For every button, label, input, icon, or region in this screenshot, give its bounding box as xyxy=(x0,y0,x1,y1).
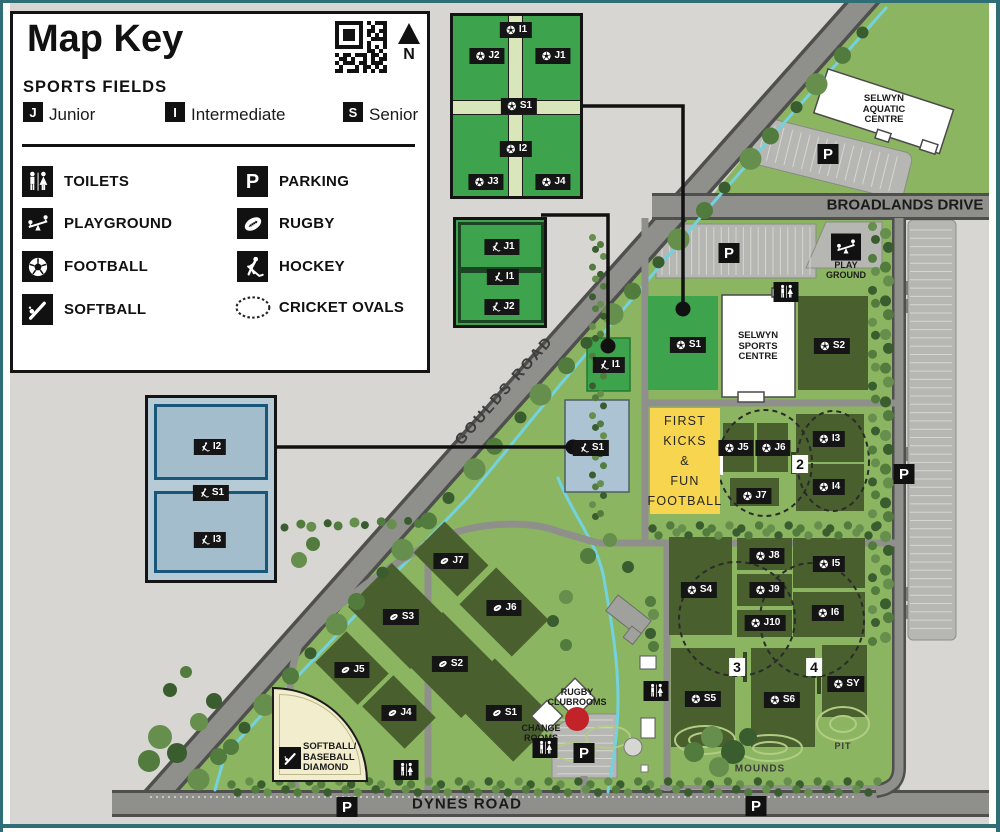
field-label-rugby-j7: J7 xyxy=(433,553,468,569)
field-code: I3 xyxy=(213,535,221,545)
rugby-icon xyxy=(237,208,268,239)
softball-diamond-label: SOFTBALL/ BASEBALL DIAMOND xyxy=(303,742,356,774)
tree xyxy=(871,586,880,595)
tree xyxy=(672,528,680,536)
tree xyxy=(281,785,289,793)
legend-label: HOCKEY xyxy=(279,258,345,275)
field-label-football-i4: I4 xyxy=(813,479,845,495)
tree xyxy=(774,531,782,539)
field-code: J9 xyxy=(768,585,779,595)
field-code: I2 xyxy=(519,144,527,154)
tree xyxy=(296,520,305,529)
football-icon xyxy=(818,481,830,493)
first-kicks-area: FIRST KICKS & FUN FOOTBALL xyxy=(650,408,720,514)
field-label-football-s4: S4 xyxy=(681,582,717,598)
sports-centre-label: SELWYNSPORTSCENTRE xyxy=(738,331,778,363)
rugby-icon xyxy=(386,707,398,719)
tree xyxy=(880,295,891,306)
tree xyxy=(883,343,894,354)
tree xyxy=(581,337,593,349)
legend-label: CRICKET OVALS xyxy=(279,299,404,316)
hockey-icon xyxy=(492,271,504,283)
tree xyxy=(871,331,880,340)
field-code: I6 xyxy=(831,608,839,618)
field-code: J6 xyxy=(505,603,516,613)
tree xyxy=(597,390,604,397)
tree xyxy=(864,531,872,539)
cricket-ovals-icon xyxy=(232,294,274,321)
tree xyxy=(822,528,830,536)
softball-icon xyxy=(22,294,53,325)
dynes-road-label: DYNES ROAD xyxy=(412,797,522,814)
tree xyxy=(883,478,894,489)
tree xyxy=(589,323,596,330)
tree xyxy=(755,521,763,529)
rugby-icon xyxy=(438,555,450,567)
field-label-hockey-j2: J2 xyxy=(484,299,519,315)
tree xyxy=(514,777,522,785)
field-code: I1 xyxy=(519,25,527,35)
oval-number-2: 2 xyxy=(792,455,808,473)
tree xyxy=(559,590,573,604)
field-label-football-sy: SY xyxy=(827,676,864,692)
tree xyxy=(880,262,891,273)
tree xyxy=(251,785,259,793)
legend-label: SOFTBALL xyxy=(64,301,146,318)
tree xyxy=(696,521,704,529)
hockey-icon xyxy=(240,254,266,280)
field-label-football-s5: S5 xyxy=(685,691,721,707)
tree xyxy=(834,47,851,64)
parking-marker: P xyxy=(818,144,839,164)
tree xyxy=(648,641,659,652)
tree xyxy=(762,785,770,793)
field-label-football-j1: J1 xyxy=(535,48,570,64)
tree xyxy=(574,777,582,785)
page-margin-right xyxy=(989,3,996,824)
frame-right xyxy=(996,0,1000,832)
field-label-rugby-j5: J5 xyxy=(334,662,369,678)
key-divider xyxy=(22,144,415,147)
field-code: S4 xyxy=(700,585,712,595)
rugby-icon xyxy=(491,602,503,614)
football-icon xyxy=(690,693,702,705)
tree xyxy=(880,598,891,609)
tree xyxy=(377,517,386,526)
mounds-label: MOUNDS xyxy=(735,763,785,774)
tree xyxy=(864,788,872,796)
tree xyxy=(868,222,877,231)
tree xyxy=(740,148,762,170)
tree xyxy=(392,539,414,561)
tree xyxy=(223,739,239,755)
football-icon xyxy=(818,558,830,570)
frame-bottom xyxy=(0,824,1000,828)
tree xyxy=(227,780,235,788)
tree xyxy=(654,531,662,539)
field-code: I4 xyxy=(832,482,840,492)
tree xyxy=(600,283,607,290)
tree xyxy=(167,743,187,763)
tree xyxy=(701,726,723,748)
field-code: S2 xyxy=(451,659,463,669)
toilets-icon xyxy=(777,283,795,301)
softball-marker xyxy=(279,747,301,769)
football-icon xyxy=(819,340,831,352)
field-code: J1 xyxy=(554,51,565,61)
tree xyxy=(883,377,894,388)
tree xyxy=(868,382,877,391)
field-code: J6 xyxy=(774,443,785,453)
parking-icon: P xyxy=(237,166,268,197)
frame-top xyxy=(0,0,1000,3)
field-code: S3 xyxy=(402,612,414,622)
hockey-icon xyxy=(198,487,210,499)
football-icon xyxy=(760,442,772,454)
page-margin-bottom xyxy=(0,828,1000,832)
tree xyxy=(694,777,702,785)
football-icon xyxy=(818,433,830,445)
qr-code xyxy=(335,21,387,73)
tree xyxy=(871,235,880,244)
tree xyxy=(868,318,877,327)
toilets-icon xyxy=(397,761,415,779)
tree xyxy=(857,27,869,39)
tree xyxy=(600,373,607,380)
junior-label: Junior xyxy=(49,105,95,125)
tree xyxy=(600,462,607,469)
tree xyxy=(719,182,731,194)
tree xyxy=(432,785,440,793)
hockey-icon xyxy=(489,301,501,313)
tree xyxy=(834,788,842,796)
legend-label: PARKING xyxy=(279,173,349,190)
parking-icon: P xyxy=(246,172,259,192)
tree xyxy=(873,777,881,785)
tree xyxy=(702,785,710,793)
tree xyxy=(880,632,891,643)
field-label-football-j7: J7 xyxy=(736,488,771,504)
field-label-rugby-s2: S2 xyxy=(432,656,468,672)
tree xyxy=(492,785,500,793)
tree xyxy=(784,777,792,785)
field-code: J2 xyxy=(503,302,514,312)
tree xyxy=(880,228,891,239)
field-label-hockey-s1: S1 xyxy=(193,485,229,501)
tree xyxy=(804,531,812,539)
tree xyxy=(883,511,894,522)
page-margin-left xyxy=(3,3,10,824)
tree xyxy=(188,769,210,791)
hockey-icon xyxy=(199,534,211,546)
tree xyxy=(880,565,891,576)
tree xyxy=(404,517,412,525)
field-label-football-i2: I2 xyxy=(500,141,532,157)
field-code: S1 xyxy=(505,708,517,718)
field-label-football-s6: S6 xyxy=(764,692,800,708)
tree xyxy=(334,521,343,530)
tree xyxy=(462,785,470,793)
tree xyxy=(455,777,463,785)
field-label-football-j6: J6 xyxy=(755,440,790,456)
tree xyxy=(642,785,650,793)
tree xyxy=(883,444,894,455)
field-label-football-j3: J3 xyxy=(468,174,503,190)
tree xyxy=(597,480,604,487)
tree xyxy=(372,785,380,793)
tree xyxy=(732,528,740,536)
legend-item-rugby: RUGBY xyxy=(237,208,335,239)
tree xyxy=(597,331,604,338)
tree xyxy=(684,531,692,539)
tree xyxy=(714,531,722,539)
tree xyxy=(774,788,782,796)
tree xyxy=(785,521,793,529)
tree xyxy=(883,579,894,590)
hockey-icon xyxy=(199,441,211,453)
field-label-hockey-s1: S1 xyxy=(573,440,609,456)
tree xyxy=(305,647,317,659)
tree xyxy=(464,458,486,480)
tree xyxy=(589,234,596,241)
tree xyxy=(384,788,392,796)
field-code: S1 xyxy=(689,340,701,350)
tree xyxy=(600,253,607,260)
tree xyxy=(281,524,289,532)
rugby-icon xyxy=(388,611,400,623)
parking-marker: P xyxy=(574,743,595,763)
tree xyxy=(880,329,891,340)
aquatic-centre-label: SELWYNAQUATICCENTRE xyxy=(863,94,906,126)
tree xyxy=(600,313,607,320)
football-icon xyxy=(505,24,517,36)
tree xyxy=(589,264,596,271)
tree xyxy=(868,605,877,614)
field-label-hockey-j1: J1 xyxy=(484,239,519,255)
softball-icon xyxy=(25,297,51,323)
tree xyxy=(206,693,222,709)
field-label-football-j10: J10 xyxy=(745,615,786,631)
tree xyxy=(326,613,348,635)
softball-icon xyxy=(282,750,299,767)
tree xyxy=(282,668,299,685)
map-key-title: Map Key xyxy=(27,18,183,61)
tree xyxy=(804,788,812,796)
toilets-marker xyxy=(644,681,669,701)
tree xyxy=(560,639,572,651)
field-code: I1 xyxy=(506,272,514,282)
tree xyxy=(485,777,493,785)
field-label-hockey-i3: I3 xyxy=(194,532,226,548)
tree xyxy=(868,286,877,295)
field-code: J8 xyxy=(768,551,779,561)
tree xyxy=(668,228,690,250)
playground-icon xyxy=(25,211,51,237)
field-label-football-i6: I6 xyxy=(812,605,844,621)
tree xyxy=(880,531,891,542)
sports-fields-heading: SPORTS FIELDS xyxy=(23,78,167,97)
legend-item-hockey: HOCKEY xyxy=(237,251,345,282)
field-label-football-s1: S1 xyxy=(501,98,537,114)
tree xyxy=(597,271,604,278)
connector-dot xyxy=(676,302,691,317)
football-icon xyxy=(723,442,735,454)
tree xyxy=(239,722,251,734)
tree xyxy=(871,267,880,276)
rugby-icon xyxy=(339,664,351,676)
tree xyxy=(564,788,572,796)
tree xyxy=(245,777,253,785)
tree xyxy=(702,528,710,536)
tree xyxy=(350,518,360,528)
field-code: S1 xyxy=(212,488,224,498)
field-label-football-i5: I5 xyxy=(813,556,845,572)
senior-label: Senior xyxy=(369,105,418,125)
rugby-clubrooms-label: RUGBYCLUBROOMS xyxy=(548,687,607,707)
parking-marker: P xyxy=(337,797,358,817)
tree xyxy=(311,785,319,793)
tree xyxy=(648,524,656,532)
field-label-football-j4: J4 xyxy=(535,174,570,190)
tree xyxy=(871,299,880,308)
tree xyxy=(868,573,877,582)
tree xyxy=(871,554,880,563)
tree xyxy=(873,521,881,529)
football-icon xyxy=(741,490,753,502)
tree xyxy=(414,519,423,528)
tree xyxy=(814,521,822,529)
football-icon xyxy=(473,176,485,188)
hockey-icon xyxy=(237,251,268,282)
tree xyxy=(600,492,607,499)
toilets-icon xyxy=(647,682,665,700)
tree xyxy=(341,785,349,793)
tree xyxy=(883,612,894,623)
tree xyxy=(880,363,891,374)
tree xyxy=(293,788,301,796)
tree xyxy=(600,402,607,409)
tree xyxy=(604,777,612,785)
intermediate-label: Intermediate xyxy=(191,105,286,125)
field-label-football-s1: S1 xyxy=(670,337,706,353)
tree xyxy=(534,788,542,796)
tree xyxy=(684,788,692,796)
field-code: S5 xyxy=(704,694,716,704)
tree xyxy=(868,477,877,486)
football-icon xyxy=(506,100,518,112)
tree xyxy=(666,521,674,529)
tree xyxy=(597,301,604,308)
tree xyxy=(664,777,672,785)
legend-label: RUGBY xyxy=(279,215,335,232)
connector-dot xyxy=(601,339,616,354)
parking-marker: P xyxy=(746,796,767,816)
field-code: S1 xyxy=(520,101,532,111)
tree xyxy=(648,609,659,620)
tree xyxy=(603,533,617,547)
hockey-icon xyxy=(578,442,590,454)
toilets-marker xyxy=(774,282,799,302)
tree xyxy=(589,293,596,300)
field-label-rugby-s3: S3 xyxy=(383,609,419,625)
tree xyxy=(233,788,241,796)
tree xyxy=(724,777,732,785)
rugby-icon xyxy=(437,658,449,670)
field-label-football-i3: I3 xyxy=(813,431,845,447)
football-icon xyxy=(540,176,552,188)
intermediate-code-badge: I xyxy=(165,102,185,122)
field-code: J3 xyxy=(487,177,498,187)
tree xyxy=(880,497,891,508)
field-code: J5 xyxy=(737,443,748,453)
tree xyxy=(420,512,437,529)
toilets-icon xyxy=(25,169,51,195)
tree xyxy=(306,522,316,532)
field-code: J7 xyxy=(755,491,766,501)
football-icon xyxy=(474,50,486,62)
tree xyxy=(291,552,307,568)
map-key-panel: Map Key N SPORTS FIELDS J Junior I Inter… xyxy=(10,11,430,373)
tree xyxy=(377,567,389,579)
selwyn-sports-park-map: Map Key N SPORTS FIELDS J Junior I Inter… xyxy=(0,0,1000,832)
tree xyxy=(792,785,800,793)
field-label-football-j5: J5 xyxy=(718,440,753,456)
tree xyxy=(762,528,770,536)
legend-label: PLAYGROUND xyxy=(64,215,172,232)
tree xyxy=(138,750,160,772)
field-code: S1 xyxy=(592,443,604,453)
tree xyxy=(852,528,860,536)
field-code: J7 xyxy=(452,556,463,566)
legend-item-softball: SOFTBALL xyxy=(22,294,146,325)
tree xyxy=(883,309,894,320)
tree xyxy=(624,788,632,796)
football-icon xyxy=(22,251,53,282)
field-code: I1 xyxy=(612,360,620,370)
legend-label: TOILETS xyxy=(64,173,129,190)
field-label-rugby-s1: S1 xyxy=(486,705,522,721)
football-icon xyxy=(754,550,766,562)
field-label-football-i1: I1 xyxy=(500,22,532,38)
tree xyxy=(883,410,894,421)
tree xyxy=(544,777,552,785)
tree xyxy=(425,777,433,785)
tree xyxy=(868,414,877,423)
playground-icon xyxy=(834,235,858,259)
tree xyxy=(714,788,722,796)
tree xyxy=(744,531,752,539)
football-icon xyxy=(817,607,829,619)
tree xyxy=(547,615,559,627)
field-code: S6 xyxy=(783,695,795,705)
tree xyxy=(792,528,800,536)
field-label-rugby-j6: J6 xyxy=(486,600,521,616)
tree xyxy=(880,464,891,475)
playground-icon xyxy=(22,208,53,239)
tree xyxy=(634,777,642,785)
tree xyxy=(306,537,320,551)
football-icon xyxy=(754,584,766,596)
tree xyxy=(709,757,729,777)
field-code: J4 xyxy=(400,708,411,718)
legend-item-football: FOOTBALL xyxy=(22,251,148,282)
tree xyxy=(834,531,842,539)
football-icon xyxy=(505,143,517,155)
tree xyxy=(868,637,877,646)
rugby-icon xyxy=(491,707,503,719)
oval-number-4: 4 xyxy=(806,658,822,676)
tree xyxy=(597,420,604,427)
